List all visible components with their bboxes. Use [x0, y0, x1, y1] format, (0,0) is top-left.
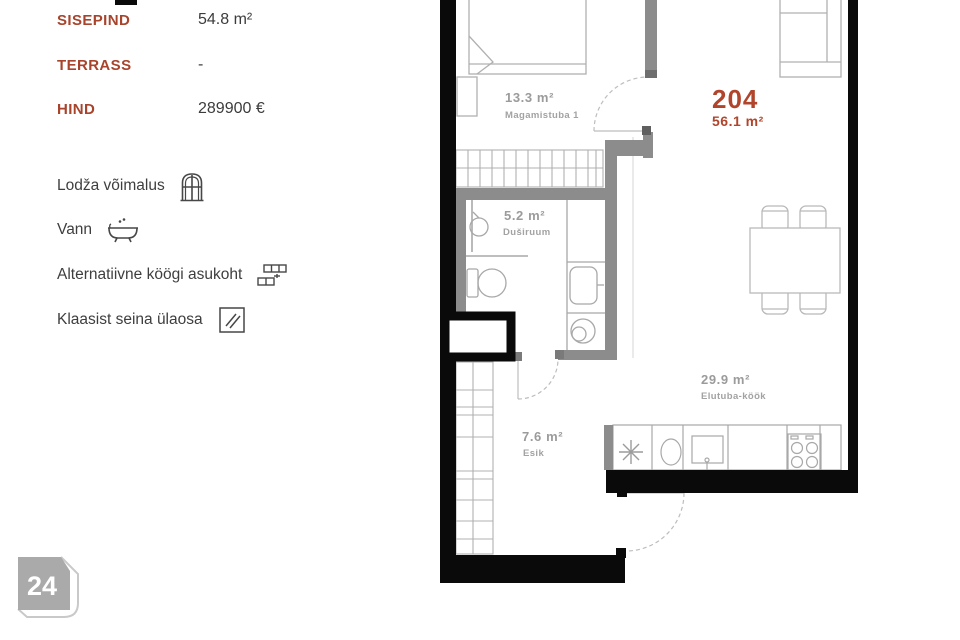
- bedroom-name-label: Magamistuba 1: [505, 110, 579, 121]
- sink-basin: [661, 439, 681, 465]
- bathroom-name-label: Duširuum: [503, 227, 551, 238]
- bedroom-closet: [456, 150, 603, 187]
- living-area-label: 29.9 m²: [701, 372, 750, 387]
- floorplan-drawing: [0, 0, 960, 640]
- floor-badge: 24: [12, 550, 90, 635]
- shaft: [445, 316, 511, 357]
- sofa: [780, 0, 841, 77]
- hall-area-label: 7.6 m²: [522, 429, 563, 444]
- kitchen-counter: [613, 425, 841, 470]
- badge-number: 24: [27, 571, 57, 601]
- hob: [788, 434, 821, 470]
- bathroom-area-label: 5.2 m²: [504, 208, 545, 223]
- living-name-label: Elutuba-köök: [701, 391, 766, 402]
- unit-area-label: 56.1 m²: [712, 113, 764, 129]
- esik-closet: [456, 362, 493, 554]
- sink-unit: [692, 436, 723, 470]
- unit-number-label: 204: [712, 84, 758, 115]
- dining-set: [750, 206, 840, 314]
- snowflake-symbol: [619, 440, 643, 464]
- hall-name-label: Esik: [523, 448, 544, 459]
- bedroom-area-label: 13.3 m²: [505, 90, 554, 105]
